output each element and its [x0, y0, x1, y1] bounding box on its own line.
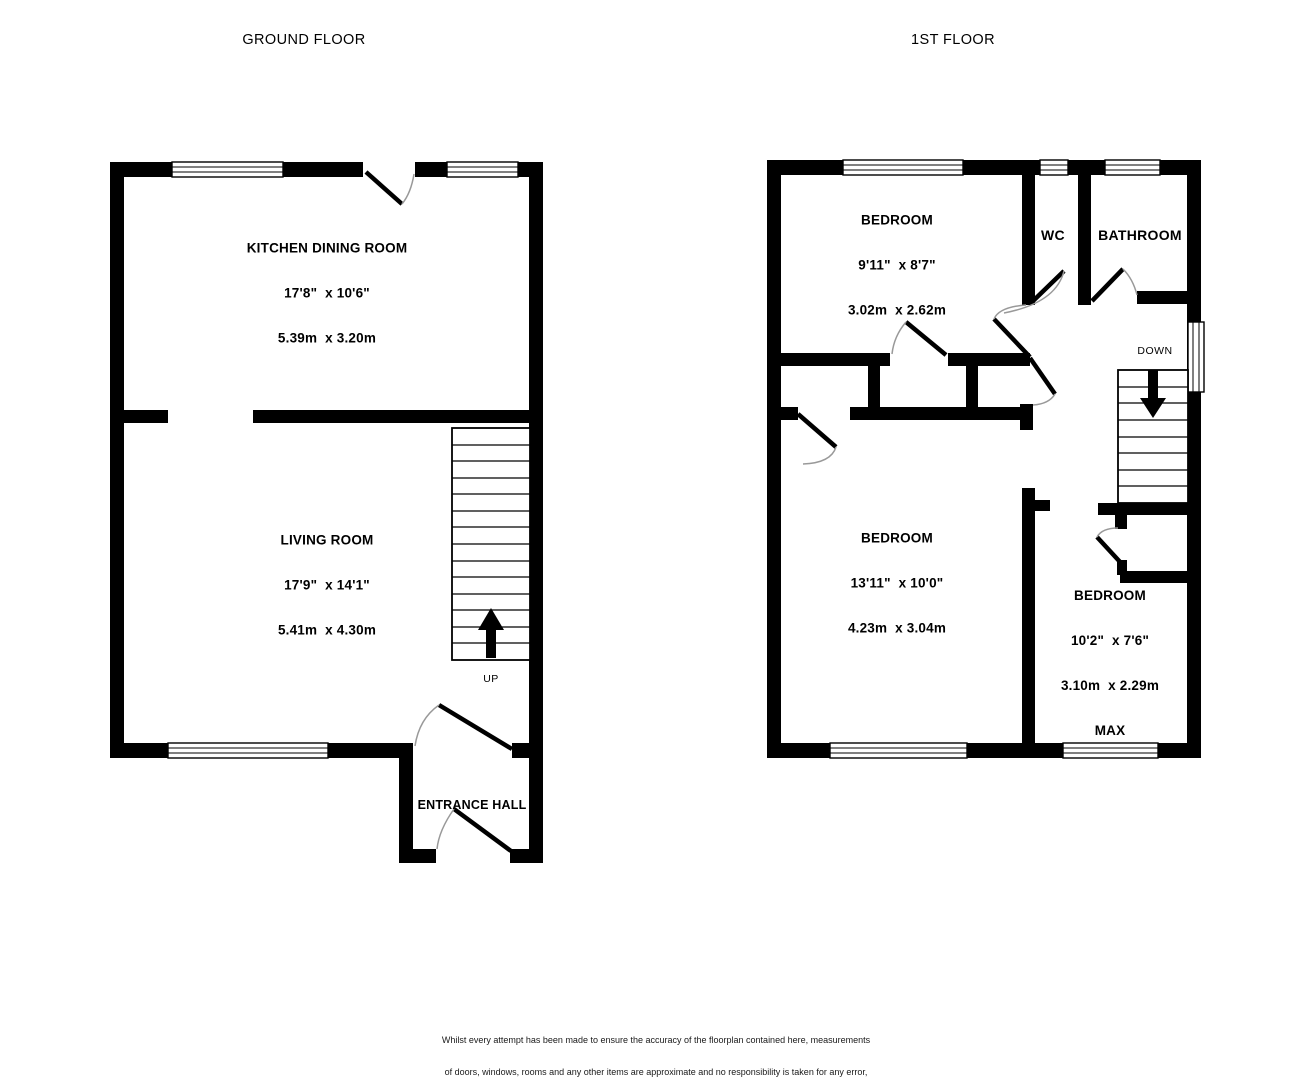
door-leaf	[994, 319, 1030, 357]
room-dims-imperial: 10'2" x 7'6"	[1061, 633, 1159, 648]
wall	[110, 410, 168, 423]
door-swing-arc	[1123, 269, 1137, 295]
door-swing-arc	[803, 447, 836, 464]
door-leaf	[1033, 271, 1064, 301]
floorplan-canvas: GROUND FLOOR 1ST FLOOR KITCHEN DINING RO…	[0, 0, 1312, 1080]
room-dims-metric: 5.39m x 3.20m	[247, 331, 408, 346]
window	[447, 162, 518, 177]
wall	[966, 353, 978, 420]
staircase	[1118, 370, 1188, 503]
entrance-hall-label: ENTRANCE HALL	[418, 798, 527, 812]
window	[172, 162, 283, 177]
bathroom-label: BATHROOM	[1098, 227, 1182, 243]
first-floor-title: 1ST FLOOR	[911, 32, 995, 48]
window	[1105, 160, 1160, 175]
bedroom1-label: BEDROOM 9'11" x 8'7" 3.02m x 2.62m	[848, 183, 946, 348]
wall	[1098, 503, 1188, 515]
wall	[253, 410, 543, 423]
door-swing-arc	[402, 174, 414, 204]
kitchen-dining-room-label: KITCHEN DINING ROOM 17'8" x 10'6" 5.39m …	[247, 211, 408, 376]
wall	[512, 743, 543, 758]
door-leaf	[1092, 269, 1123, 301]
wall	[781, 407, 798, 420]
door-swing-arc	[415, 705, 439, 746]
room-name: BEDROOM	[1061, 588, 1159, 603]
wall	[868, 353, 880, 420]
room-dims-note: MAX	[1061, 723, 1159, 738]
bedroom3-label: BEDROOM 10'2" x 7'6" 3.10m x 2.29m MAX	[1061, 558, 1159, 768]
staircase	[452, 428, 530, 660]
room-dims-metric: 4.23m x 3.04m	[848, 621, 946, 636]
door-swing-arc	[1033, 394, 1055, 405]
window	[168, 743, 328, 758]
window	[830, 743, 967, 758]
room-name: KITCHEN DINING ROOM	[247, 241, 408, 256]
door-leaf	[798, 414, 836, 447]
wall	[1022, 488, 1035, 758]
room-name: BEDROOM	[848, 531, 946, 546]
bedroom2-label: BEDROOM 13'11" x 10'0" 4.23m x 3.04m	[848, 501, 946, 666]
wall	[1115, 515, 1127, 529]
room-dims-imperial: 13'11" x 10'0"	[848, 576, 946, 591]
wall	[1022, 173, 1035, 305]
room-dims-imperial: 9'11" x 8'7"	[848, 258, 946, 273]
door-leaf	[1030, 358, 1055, 394]
stairs-down-label: DOWN	[1137, 345, 1172, 357]
door-swing-arc	[1097, 528, 1118, 537]
room-dims-metric: 5.41m x 4.30m	[278, 623, 376, 638]
wc-label: WC	[1041, 227, 1065, 243]
wall	[948, 353, 1030, 366]
room-dims-metric: 3.02m x 2.62m	[848, 303, 946, 318]
disclaimer-line: of doors, windows, rooms and any other i…	[439, 1067, 872, 1078]
wall	[1035, 500, 1050, 511]
living-room-label: LIVING ROOM 17'9" x 14'1" 5.41m x 4.30m	[278, 503, 376, 668]
stairs-up-label: UP	[483, 673, 499, 685]
room-name: LIVING ROOM	[278, 533, 376, 548]
wall	[399, 743, 413, 863]
room-dims-imperial: 17'8" x 10'6"	[247, 286, 408, 301]
door-leaf	[439, 705, 512, 749]
door-swing-arc	[437, 809, 454, 849]
window	[1040, 160, 1068, 175]
ground-floor-title: GROUND FLOOR	[242, 32, 365, 48]
wall	[110, 162, 124, 758]
wall	[767, 160, 781, 758]
wall	[1020, 404, 1033, 430]
window	[1188, 322, 1204, 392]
wall	[399, 849, 436, 863]
disclaimer-line: Whilst every attempt has been made to en…	[439, 1035, 872, 1046]
wall	[510, 849, 543, 863]
door-leaf	[454, 809, 511, 851]
room-dims-metric: 3.10m x 2.29m	[1061, 678, 1159, 693]
wall	[1187, 160, 1201, 758]
wall	[1137, 291, 1189, 304]
wall	[1078, 173, 1091, 305]
room-name: BEDROOM	[848, 213, 946, 228]
window	[843, 160, 963, 175]
floorplan-drawing	[0, 0, 1312, 1080]
room-dims-imperial: 17'9" x 14'1"	[278, 578, 376, 593]
disclaimer-text: Whilst every attempt has been made to en…	[439, 1014, 872, 1080]
